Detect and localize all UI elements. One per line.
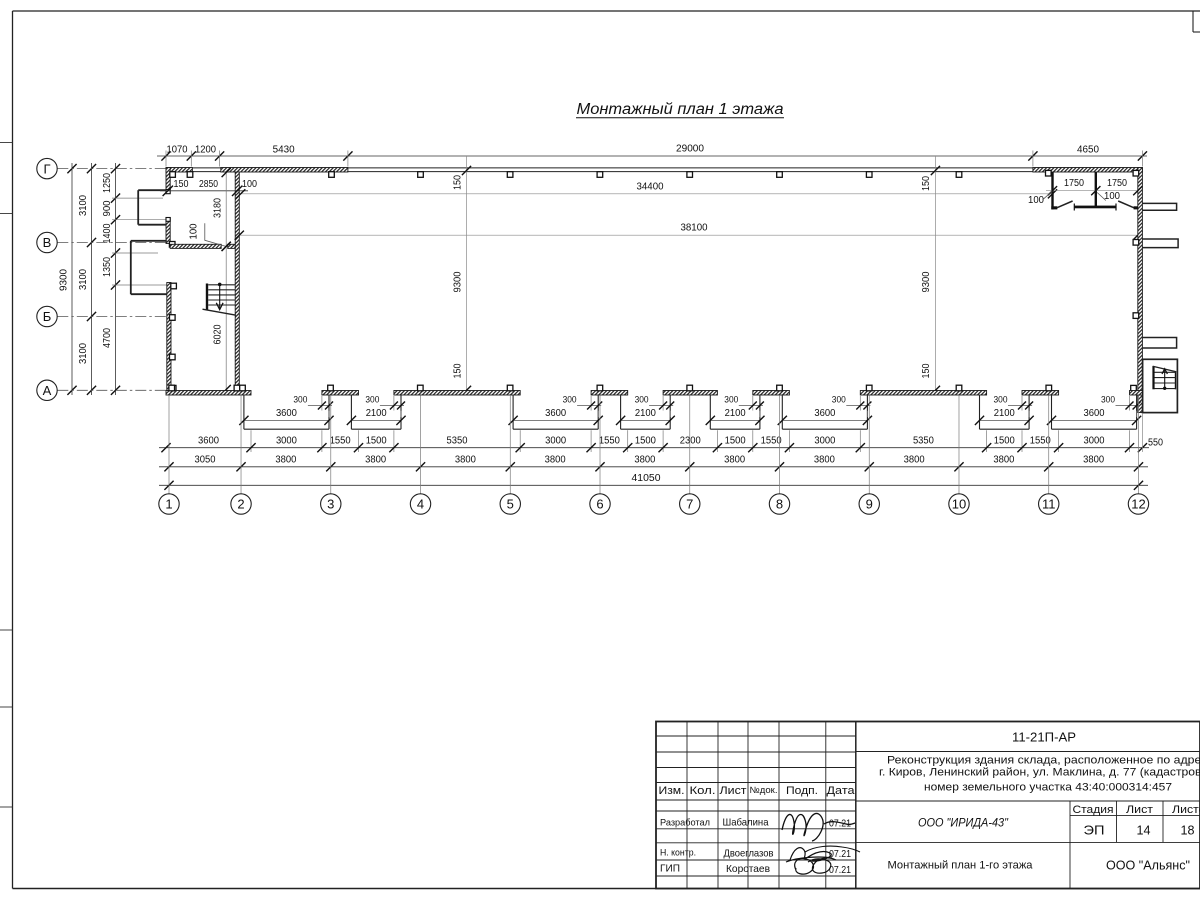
svg-text:3600: 3600 xyxy=(545,408,567,419)
svg-text:Разработал: Разработал xyxy=(660,818,710,829)
svg-text:Н. контр.: Н. контр. xyxy=(660,848,696,859)
svg-text:Г: Г xyxy=(43,161,50,176)
svg-text:3600: 3600 xyxy=(1084,408,1106,419)
svg-text:300: 300 xyxy=(563,394,577,404)
svg-text:Б: Б xyxy=(43,309,52,324)
svg-text:1550: 1550 xyxy=(599,436,621,447)
svg-text:10: 10 xyxy=(952,497,966,512)
svg-text:9300: 9300 xyxy=(921,271,932,293)
svg-text:3600: 3600 xyxy=(814,408,836,419)
svg-text:1500: 1500 xyxy=(725,436,747,447)
svg-text:900: 900 xyxy=(102,200,113,217)
svg-text:Кол.: Кол. xyxy=(690,785,716,797)
svg-text:3100: 3100 xyxy=(78,269,89,290)
svg-text:150: 150 xyxy=(921,363,932,378)
svg-text:300: 300 xyxy=(293,394,307,404)
svg-text:3800: 3800 xyxy=(993,455,1015,466)
svg-text:3050: 3050 xyxy=(195,455,217,466)
svg-text:300: 300 xyxy=(994,394,1008,404)
svg-text:550: 550 xyxy=(1148,438,1163,449)
svg-text:Монтажный план 1-го этажа: Монтажный план 1-го этажа xyxy=(888,860,1034,872)
svg-text:Двоеглазов: Двоеглазов xyxy=(724,849,774,860)
svg-text:ООО "Альянс": ООО "Альянс" xyxy=(1106,858,1190,873)
svg-text:2300: 2300 xyxy=(680,436,702,447)
svg-text:3100: 3100 xyxy=(78,343,89,364)
svg-text:9300: 9300 xyxy=(452,271,463,293)
svg-text:1550: 1550 xyxy=(1030,436,1052,447)
svg-text:3800: 3800 xyxy=(634,455,656,466)
svg-text:150: 150 xyxy=(921,176,932,191)
svg-text:5350: 5350 xyxy=(447,436,469,447)
svg-text:2850: 2850 xyxy=(199,179,218,190)
svg-text:3800: 3800 xyxy=(455,455,477,466)
svg-text:3800: 3800 xyxy=(365,455,387,466)
svg-text:41050: 41050 xyxy=(632,473,661,484)
svg-text:1: 1 xyxy=(165,497,172,512)
svg-text:8: 8 xyxy=(776,497,783,512)
svg-text:В: В xyxy=(43,235,52,250)
svg-text:3800: 3800 xyxy=(904,455,926,466)
svg-text:6020: 6020 xyxy=(213,324,224,345)
svg-text:1500: 1500 xyxy=(994,436,1016,447)
svg-text:12: 12 xyxy=(1131,497,1145,512)
svg-text:1350: 1350 xyxy=(102,256,113,277)
svg-text:1070: 1070 xyxy=(167,145,189,156)
svg-text:3180: 3180 xyxy=(212,197,223,218)
svg-text:2100: 2100 xyxy=(994,408,1016,419)
svg-text:3100: 3100 xyxy=(78,195,89,216)
svg-text:300: 300 xyxy=(635,394,649,404)
svg-text:11-21П-АР: 11-21П-АР xyxy=(1012,731,1076,745)
svg-text:А: А xyxy=(43,383,52,398)
svg-text:11: 11 xyxy=(1042,497,1056,512)
svg-text:9: 9 xyxy=(866,497,873,512)
svg-text:150: 150 xyxy=(452,363,463,378)
svg-text:300: 300 xyxy=(724,394,738,404)
svg-text:3800: 3800 xyxy=(1083,455,1105,466)
svg-text:№док.: №док. xyxy=(750,785,778,795)
svg-text:Шабалина: Шабалина xyxy=(723,817,769,829)
svg-text:1750: 1750 xyxy=(1107,178,1128,189)
svg-text:5: 5 xyxy=(507,497,514,512)
svg-text:3000: 3000 xyxy=(814,436,836,447)
svg-text:Листов: Листов xyxy=(1172,804,1200,816)
svg-text:3000: 3000 xyxy=(545,436,567,447)
svg-text:3600: 3600 xyxy=(276,408,298,419)
svg-text:100: 100 xyxy=(188,223,199,240)
svg-text:Изм.: Изм. xyxy=(659,785,685,797)
svg-text:Лист: Лист xyxy=(720,785,747,797)
svg-text:2: 2 xyxy=(237,497,244,512)
svg-text:07.21: 07.21 xyxy=(829,865,851,876)
svg-text:6: 6 xyxy=(596,497,603,512)
svg-text:38100: 38100 xyxy=(681,223,709,234)
svg-text:3800: 3800 xyxy=(275,455,297,466)
svg-text:2100: 2100 xyxy=(366,408,388,419)
svg-text:5430: 5430 xyxy=(273,145,296,156)
svg-text:3600: 3600 xyxy=(198,436,220,447)
svg-text:3000: 3000 xyxy=(1084,436,1106,447)
svg-text:Коротаев: Коротаев xyxy=(726,864,770,875)
svg-text:300: 300 xyxy=(1101,394,1115,404)
svg-text:2100: 2100 xyxy=(635,408,657,419)
svg-text:3800: 3800 xyxy=(814,455,836,466)
svg-text:1550: 1550 xyxy=(330,436,352,447)
svg-text:1250: 1250 xyxy=(102,172,113,193)
svg-text:3000: 3000 xyxy=(276,436,298,447)
svg-text:4650: 4650 xyxy=(1077,145,1100,156)
svg-text:300: 300 xyxy=(832,394,846,404)
svg-text:Реконструкция здания склада, р: Реконструкция здания склада, расположенн… xyxy=(887,755,1200,767)
svg-text:номер земельного участка 43:40: номер земельного участка 43:40:000314:45… xyxy=(924,782,1172,794)
svg-text:Лист: Лист xyxy=(1126,804,1154,816)
svg-text:3800: 3800 xyxy=(724,455,746,466)
svg-text:14: 14 xyxy=(1137,824,1151,838)
svg-text:4: 4 xyxy=(417,497,424,512)
svg-text:150: 150 xyxy=(174,179,189,190)
svg-text:ГИП: ГИП xyxy=(660,864,680,875)
svg-text:ООО "ИРИДА-43": ООО "ИРИДА-43" xyxy=(918,816,1009,830)
svg-text:1400: 1400 xyxy=(102,223,113,244)
svg-text:ЭП: ЭП xyxy=(1084,824,1105,838)
svg-text:3: 3 xyxy=(327,497,334,512)
svg-text:100: 100 xyxy=(242,179,257,190)
svg-text:34400: 34400 xyxy=(637,181,665,192)
svg-text:г. Киров, Ленинский район, ул.: г. Киров, Ленинский район, ул. Маклина, … xyxy=(879,767,1200,779)
svg-text:Стадия: Стадия xyxy=(1073,804,1114,816)
svg-text:100: 100 xyxy=(1028,195,1045,206)
svg-text:Подп.: Подп. xyxy=(786,785,818,797)
svg-text:4700: 4700 xyxy=(102,327,113,348)
svg-text:2100: 2100 xyxy=(725,408,747,419)
svg-text:7: 7 xyxy=(686,497,693,512)
svg-text:1500: 1500 xyxy=(635,436,657,447)
svg-text:1550: 1550 xyxy=(761,436,783,447)
svg-text:Монтажный план 1 этажа: Монтажный план 1 этажа xyxy=(577,101,784,118)
svg-text:18: 18 xyxy=(1181,824,1195,838)
svg-text:3800: 3800 xyxy=(545,455,567,466)
svg-text:9300: 9300 xyxy=(59,269,70,291)
svg-text:1750: 1750 xyxy=(1064,178,1085,189)
svg-text:Дата: Дата xyxy=(827,785,856,797)
svg-text:29000: 29000 xyxy=(676,144,704,155)
svg-text:150: 150 xyxy=(452,175,463,190)
svg-text:300: 300 xyxy=(365,394,379,404)
svg-text:1200: 1200 xyxy=(195,145,217,156)
svg-text:100: 100 xyxy=(1104,191,1121,202)
svg-text:1500: 1500 xyxy=(366,436,388,447)
svg-text:5350: 5350 xyxy=(913,436,935,447)
